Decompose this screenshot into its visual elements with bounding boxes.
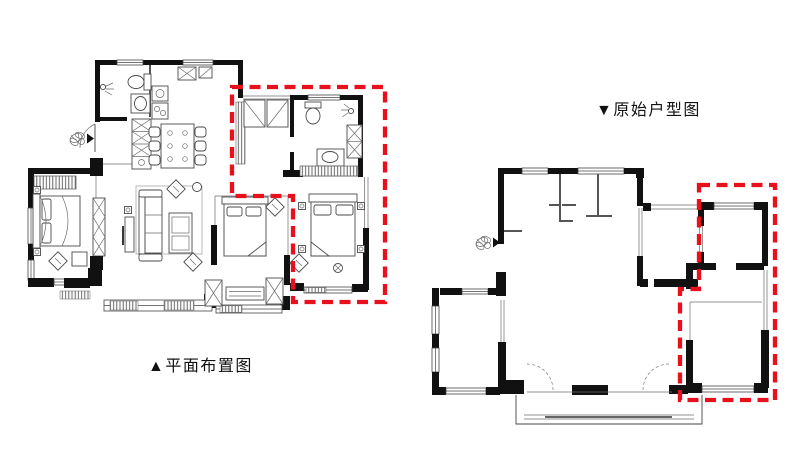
balcony bbox=[516, 392, 702, 424]
right-floor-plan bbox=[432, 168, 775, 424]
entry-plant-icon bbox=[475, 235, 500, 251]
floor-plan-drawing bbox=[0, 0, 800, 449]
door-swing-arc bbox=[527, 364, 553, 390]
entry-closet bbox=[132, 119, 151, 169]
red-highlight-outline-right bbox=[680, 185, 775, 400]
door-swing-arc bbox=[643, 364, 669, 390]
right-plan-walls bbox=[432, 168, 769, 424]
left-plan-label: ▲平面布置图 bbox=[148, 352, 253, 376]
shower-icon bbox=[341, 104, 354, 117]
dresser-cabinet bbox=[300, 166, 358, 176]
master-bedroom bbox=[33, 176, 87, 270]
entry-plant-icon bbox=[69, 131, 94, 147]
right-plan-label: ▼原始户型图 bbox=[596, 96, 701, 120]
bathroom-1 bbox=[100, 74, 151, 113]
hallway-closets bbox=[244, 100, 288, 127]
left-floor-plan bbox=[28, 60, 385, 313]
shower-icon bbox=[100, 83, 114, 95]
kitchen bbox=[152, 67, 212, 119]
bathroom-2 bbox=[300, 102, 362, 176]
dining-area bbox=[149, 124, 206, 168]
tv-cabinet bbox=[125, 217, 134, 252]
living-room bbox=[123, 180, 202, 271]
floor-plan-sheet: ▲平面布置图 ▼原始户型图 bbox=[0, 0, 800, 449]
bedroom-2 bbox=[290, 194, 365, 273]
